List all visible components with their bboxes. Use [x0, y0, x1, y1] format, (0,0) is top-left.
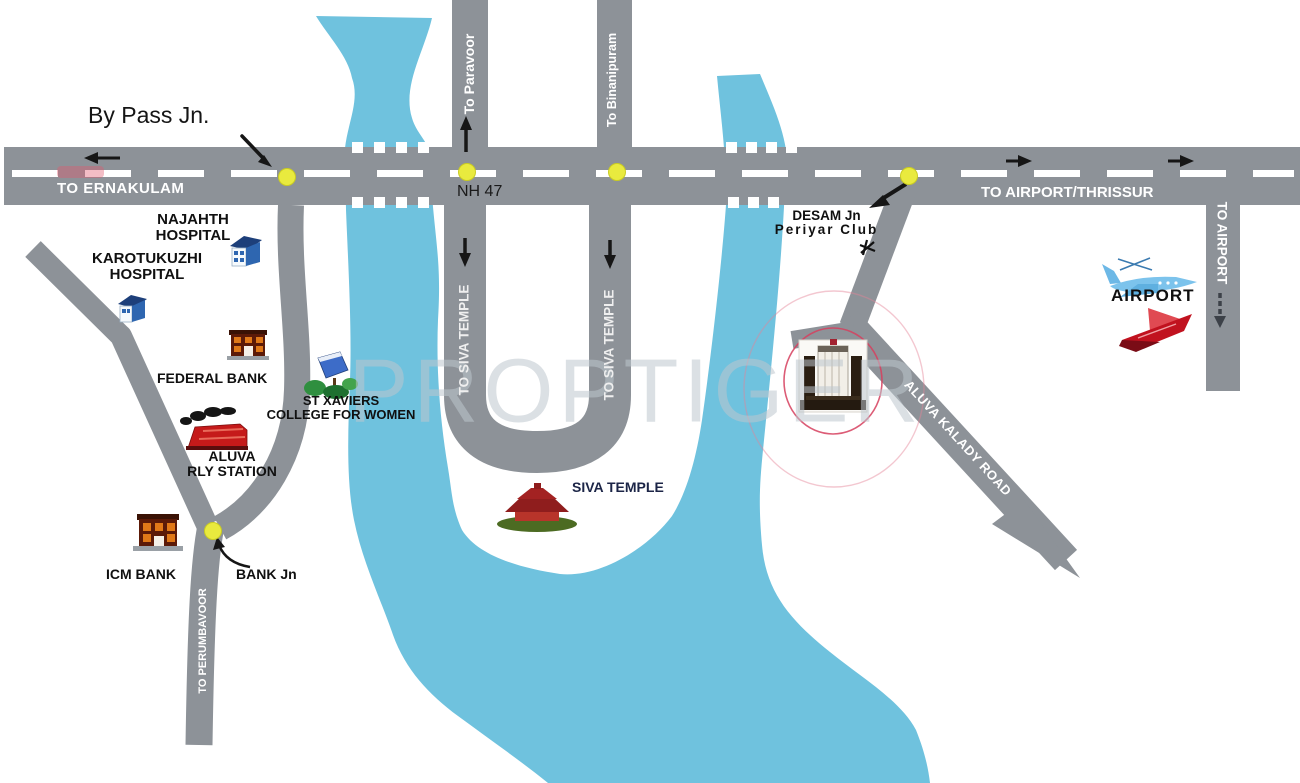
karotukuzhi-hospital-icon: [118, 295, 147, 322]
st-xaviers-line2: COLLEGE FOR WOMEN: [255, 408, 427, 422]
nh47-label: NH 47: [457, 184, 502, 201]
najahth-hospital-label: NAJAHTH HOSPITAL: [128, 212, 258, 244]
siva-temple-icon: [497, 483, 577, 532]
aluva-location-map: PROPTIGER By Pass Jn. TO ERNAKULAM NH 47…: [0, 0, 1300, 783]
road-karotukuzhi-diagonal: [33, 249, 207, 525]
najahth-hospital-line2: HOSPITAL: [128, 228, 258, 244]
to-siva-temple-right-label: TO SIVA TEMPLE: [602, 290, 617, 401]
karotukuzhi-line2: HOSPITAL: [68, 267, 226, 283]
highway-pink-smudge: [57, 166, 104, 178]
aluva-rly-station-icon: [180, 407, 248, 450]
federal-bank-label: FEDERAL BANK: [157, 371, 267, 386]
aluva-rly-line2: RLY STATION: [172, 464, 292, 479]
aluva-rly-label: ALUVA RLY STATION: [172, 449, 292, 479]
karotukuzhi-line1: KAROTUKUZHI: [68, 251, 226, 267]
st-xaviers-line1: ST XAVIERS: [255, 394, 427, 408]
icm-bank-label: ICM BANK: [106, 567, 176, 582]
to-airport-road-label: TO AIRPORT: [1215, 202, 1230, 285]
najahth-hospital-line1: NAJAHTH: [128, 212, 258, 228]
desam-jn-line1: DESAM Jn: [764, 209, 889, 223]
federal-bank-icon: [227, 330, 269, 360]
junction-dot-bank: [205, 523, 222, 540]
to-perumbavoor-label: TO PERUMBAVOOR: [197, 588, 209, 693]
junction-dot-paravoor: [459, 164, 476, 181]
aluva-rly-line1: ALUVA: [172, 449, 292, 464]
karotukuzhi-hospital-label: KAROTUKUZHI HOSPITAL: [68, 251, 226, 283]
desam-jn-line2: Periyar Club: [764, 223, 889, 237]
junction-dot-bypass: [279, 169, 296, 186]
airport-plane-red-icon: [1119, 308, 1192, 352]
icm-bank-icon: [133, 514, 183, 551]
to-binanipuram-label: To Binanipuram: [605, 33, 619, 127]
to-paravoor-label: To Paravoor: [461, 34, 477, 115]
to-airport-thrissur-label: TO AIRPORT/THRISSUR: [981, 185, 1154, 201]
airport-label: AIRPORT: [1111, 287, 1195, 305]
road-river-stub: [792, 330, 854, 340]
junction-dot-binanipuram: [609, 164, 626, 181]
watermark: PROPTIGER: [348, 341, 923, 444]
to-ernakulam-label: TO ERNAKULAM: [57, 181, 184, 197]
bank-jn-label: BANK Jn: [236, 567, 297, 582]
to-siva-temple-left-label: TO SIVA TEMPLE: [457, 285, 472, 396]
desam-jn-label: DESAM Jn Periyar Club: [764, 209, 889, 238]
junction-dot-desam: [901, 168, 918, 185]
siva-temple-label: SIVA TEMPLE: [572, 480, 664, 495]
st-xaviers-label: ST XAVIERS COLLEGE FOR WOMEN: [255, 394, 427, 422]
by-pass-jn-label: By Pass Jn.: [88, 103, 209, 127]
